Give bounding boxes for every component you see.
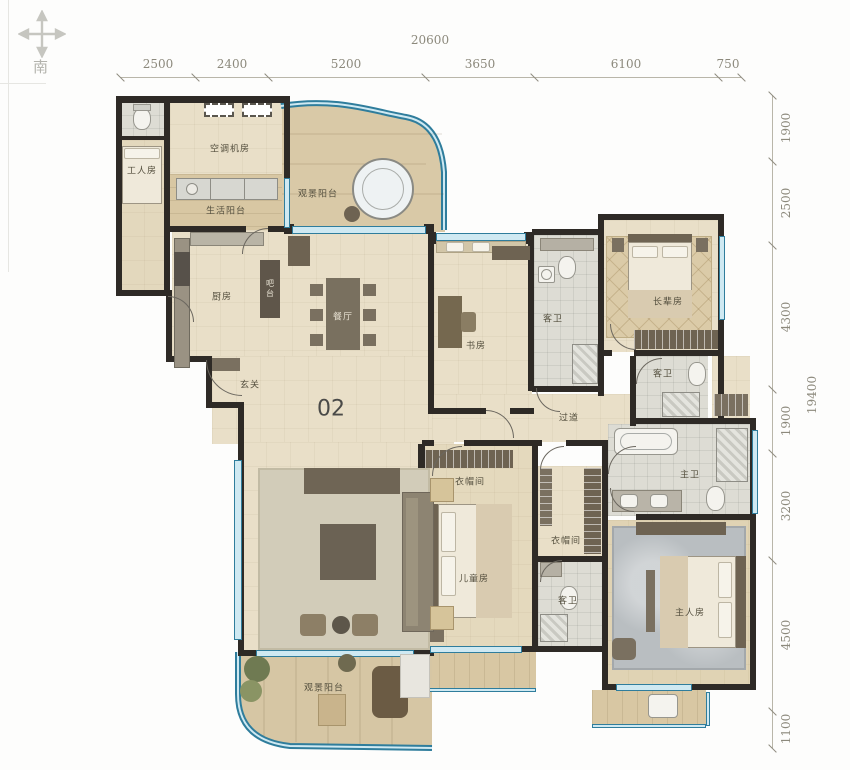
stool bbox=[338, 654, 356, 672]
hall-cabinet bbox=[714, 394, 748, 416]
counter-divider bbox=[210, 178, 211, 200]
toilet-tank bbox=[133, 104, 151, 111]
wall bbox=[116, 96, 290, 103]
room-label-bath1: 客卫 bbox=[543, 312, 563, 325]
chair bbox=[310, 284, 323, 296]
dim-top-seg: 2500 bbox=[143, 57, 174, 71]
room-label-hvac: 空调机房 bbox=[210, 142, 250, 155]
wall bbox=[532, 229, 604, 235]
room-label-master: 主人房 bbox=[675, 606, 705, 619]
cabinet bbox=[636, 522, 726, 535]
nightstand bbox=[696, 238, 708, 252]
pillow bbox=[718, 562, 732, 598]
window-living-west bbox=[234, 460, 242, 640]
room-label-south-balc: 观景阳台 bbox=[304, 681, 344, 694]
dim-right-seg: 1100 bbox=[779, 714, 793, 745]
dim-top-seg: 6100 bbox=[611, 57, 642, 71]
room-label-kitchen: 厨房 bbox=[212, 290, 232, 303]
sink bbox=[186, 183, 198, 195]
dim-top-seg: 2400 bbox=[217, 57, 248, 71]
sofa-cushions bbox=[406, 498, 418, 626]
stool bbox=[344, 206, 360, 222]
dim-right-seg: 3200 bbox=[779, 491, 793, 522]
chair bbox=[310, 334, 323, 346]
window-elders-east bbox=[719, 236, 725, 320]
compass-icon bbox=[18, 10, 66, 58]
pillow bbox=[441, 556, 456, 596]
wall bbox=[630, 356, 636, 426]
room-label-north-balc: 观景阳台 bbox=[298, 187, 338, 200]
armchair bbox=[352, 614, 378, 636]
mat bbox=[318, 694, 346, 726]
tv-console bbox=[304, 468, 400, 494]
shelf bbox=[540, 238, 594, 251]
pouf bbox=[332, 616, 350, 634]
wall bbox=[120, 136, 164, 140]
window-study-bay bbox=[436, 233, 526, 241]
wall bbox=[284, 96, 290, 178]
bench bbox=[646, 570, 655, 632]
blanket bbox=[476, 504, 512, 618]
dim-right-seg: 2500 bbox=[779, 188, 793, 219]
dim-right-line bbox=[772, 95, 773, 748]
dim-right-seg: 4300 bbox=[779, 302, 793, 333]
railing-kids-balcony bbox=[424, 688, 536, 692]
toilet bbox=[688, 362, 706, 386]
wall bbox=[598, 214, 604, 396]
pillow bbox=[662, 246, 688, 258]
room-label-bar: 吧台 bbox=[265, 279, 276, 299]
room-label-master-bath: 主卫 bbox=[680, 468, 700, 481]
wall bbox=[464, 440, 542, 446]
page-divider-horizontal bbox=[0, 83, 46, 84]
armchair bbox=[612, 638, 636, 660]
room-label-service-balc: 生活阳台 bbox=[206, 204, 246, 217]
bookshelf bbox=[492, 246, 530, 260]
room-label-cloak1: 衣帽间 bbox=[455, 475, 485, 488]
dim-top-total: 20600 bbox=[411, 33, 449, 47]
room-label-worker: 工人房 bbox=[127, 164, 157, 177]
floor-plan: 南 20600 2500 2400 5200 3650 6100 750 190… bbox=[0, 0, 850, 770]
jacuzzi-inner bbox=[362, 168, 404, 210]
wall bbox=[510, 408, 534, 414]
shower bbox=[662, 392, 700, 417]
dim-top-seg: 750 bbox=[717, 57, 740, 71]
desk bbox=[438, 296, 462, 348]
dim-top-seg: 5200 bbox=[331, 57, 362, 71]
nightstand bbox=[612, 238, 624, 252]
shower bbox=[716, 428, 748, 482]
end-table bbox=[430, 606, 454, 630]
window-service-balcony bbox=[284, 178, 290, 228]
chair bbox=[310, 309, 323, 321]
window-master-south bbox=[616, 684, 692, 691]
wall bbox=[428, 240, 434, 414]
railing-br-balcony-side bbox=[706, 692, 710, 726]
wall bbox=[428, 408, 486, 414]
room-label-bath2: 客卫 bbox=[653, 367, 673, 380]
room-label-study: 书房 bbox=[466, 339, 486, 352]
room-label-bath3: 客卫 bbox=[558, 594, 578, 607]
window-living-balcony-door bbox=[256, 650, 414, 657]
pillow bbox=[718, 602, 732, 638]
unit-number: 02 bbox=[317, 397, 345, 422]
coffee-table bbox=[320, 524, 376, 580]
toilet bbox=[558, 256, 576, 279]
room-corridor bbox=[432, 394, 632, 442]
wall bbox=[598, 350, 612, 356]
plant bbox=[244, 656, 270, 682]
end-table bbox=[430, 478, 454, 502]
dim-top-seg: 3650 bbox=[465, 57, 496, 71]
chair bbox=[363, 309, 376, 321]
wardrobe bbox=[584, 468, 601, 554]
compass-south-label: 南 bbox=[33, 56, 48, 77]
wardrobe bbox=[540, 468, 552, 526]
chair bbox=[363, 284, 376, 296]
railing-br-balcony bbox=[592, 724, 706, 728]
washer-drum bbox=[541, 269, 552, 280]
armchair bbox=[300, 614, 326, 636]
chair bbox=[363, 334, 376, 346]
sink bbox=[650, 494, 668, 508]
seat-cushion bbox=[472, 242, 490, 252]
room-label-cloak2: 衣帽间 bbox=[551, 534, 581, 547]
room-label-dining: 餐厅 bbox=[333, 310, 353, 323]
wall bbox=[532, 646, 608, 652]
dim-right-seg: 1900 bbox=[779, 406, 793, 437]
plant bbox=[240, 680, 262, 702]
room-label-elders: 长辈房 bbox=[653, 295, 683, 308]
headboard bbox=[736, 556, 746, 648]
pillow bbox=[632, 246, 658, 258]
shower bbox=[572, 344, 598, 384]
stove bbox=[174, 252, 190, 286]
dim-right-seg: 4500 bbox=[779, 620, 793, 651]
window-dining-balcony bbox=[292, 226, 426, 234]
compass: 南 bbox=[12, 6, 76, 80]
wardrobe bbox=[634, 330, 718, 349]
ac-outdoor-unit bbox=[242, 103, 272, 117]
door-swing bbox=[540, 446, 564, 470]
page-divider-vertical bbox=[8, 0, 9, 272]
pillow bbox=[441, 512, 456, 552]
shower bbox=[540, 614, 568, 642]
room-label-corridor: 过道 bbox=[559, 411, 579, 424]
counter-divider bbox=[244, 178, 245, 200]
fridge bbox=[288, 236, 310, 266]
window-kids-south bbox=[430, 646, 522, 653]
seat-cushion bbox=[446, 242, 464, 252]
wall bbox=[634, 350, 724, 356]
window-master-bath-east bbox=[752, 430, 758, 514]
pebble-strip bbox=[400, 654, 430, 698]
toilet bbox=[133, 108, 151, 130]
dim-top-line bbox=[120, 77, 741, 78]
desk-chair bbox=[461, 312, 476, 332]
room-label-foyer: 玄关 bbox=[240, 378, 260, 391]
wall bbox=[164, 96, 170, 296]
room-label-kids: 儿童房 bbox=[459, 572, 489, 585]
room-kids-balcony bbox=[424, 652, 536, 690]
cabinet bbox=[648, 694, 678, 718]
wall bbox=[636, 514, 752, 520]
dim-right-seg: 1900 bbox=[779, 113, 793, 144]
toilet bbox=[706, 486, 725, 511]
wall bbox=[532, 444, 538, 652]
pillow bbox=[124, 148, 160, 159]
dim-right-total: 19400 bbox=[805, 376, 819, 414]
blanket bbox=[660, 556, 688, 648]
ac-outdoor-unit bbox=[204, 103, 234, 117]
wall bbox=[602, 440, 608, 690]
wall bbox=[598, 214, 724, 220]
